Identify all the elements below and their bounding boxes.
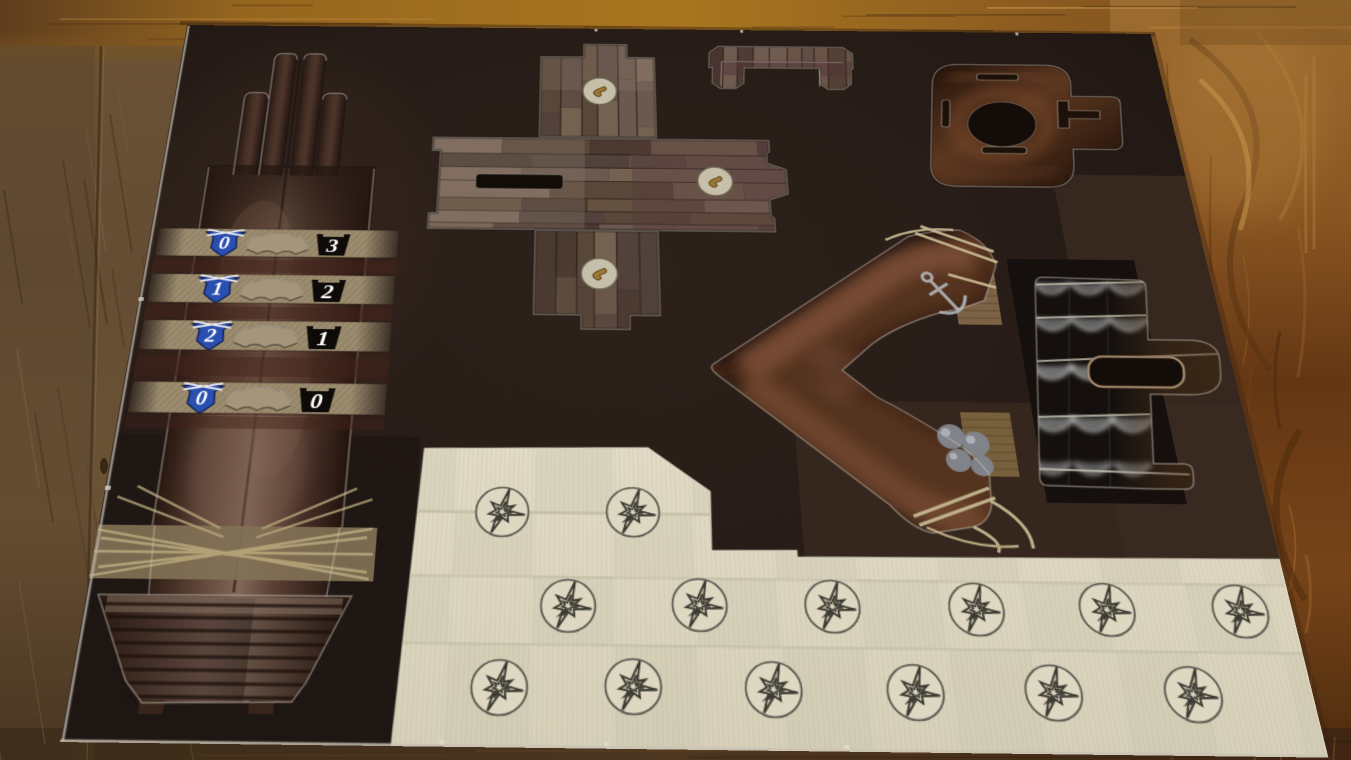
svg-text:1: 1 [316,328,330,351]
svg-text:3: 3 [324,235,339,257]
